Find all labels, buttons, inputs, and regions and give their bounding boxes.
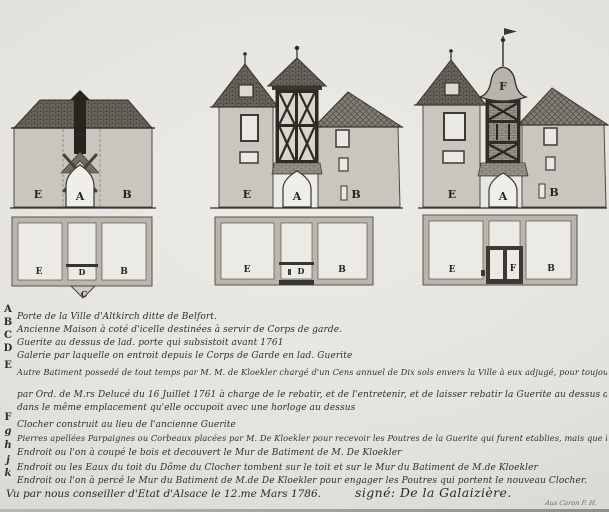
- attestation-text: Vu par nous conseiller d'Etat d'Alsace l…: [6, 488, 321, 500]
- legend-key: k: [2, 468, 14, 479]
- legend-key: j: [2, 455, 14, 466]
- legend-key: A: [2, 304, 14, 315]
- legend-text: Autre Batiment possedé de tout temps par…: [17, 367, 607, 377]
- corner-annotation: Aus Caron F. H.: [544, 499, 597, 507]
- signature-text: signé: De la Galaizière.: [355, 485, 512, 500]
- legend-key: h: [2, 440, 14, 451]
- legend-key: B: [2, 317, 14, 328]
- legend-key: g: [2, 426, 14, 437]
- legend-key: E: [2, 360, 14, 371]
- legend-key: F: [2, 412, 14, 423]
- attestation-line: Vu par nous conseiller d'Etat d'Alsace l…: [6, 485, 512, 500]
- legend: APorte de la Ville d'Altkirch ditte de B…: [0, 0, 609, 512]
- legend-row-E: EAutre Batiment possedé de tout temps pa…: [2, 360, 607, 379]
- legend-key: D: [2, 343, 14, 354]
- legend-key: C: [2, 330, 14, 341]
- document-photo: E A B E D B C B: [0, 0, 609, 512]
